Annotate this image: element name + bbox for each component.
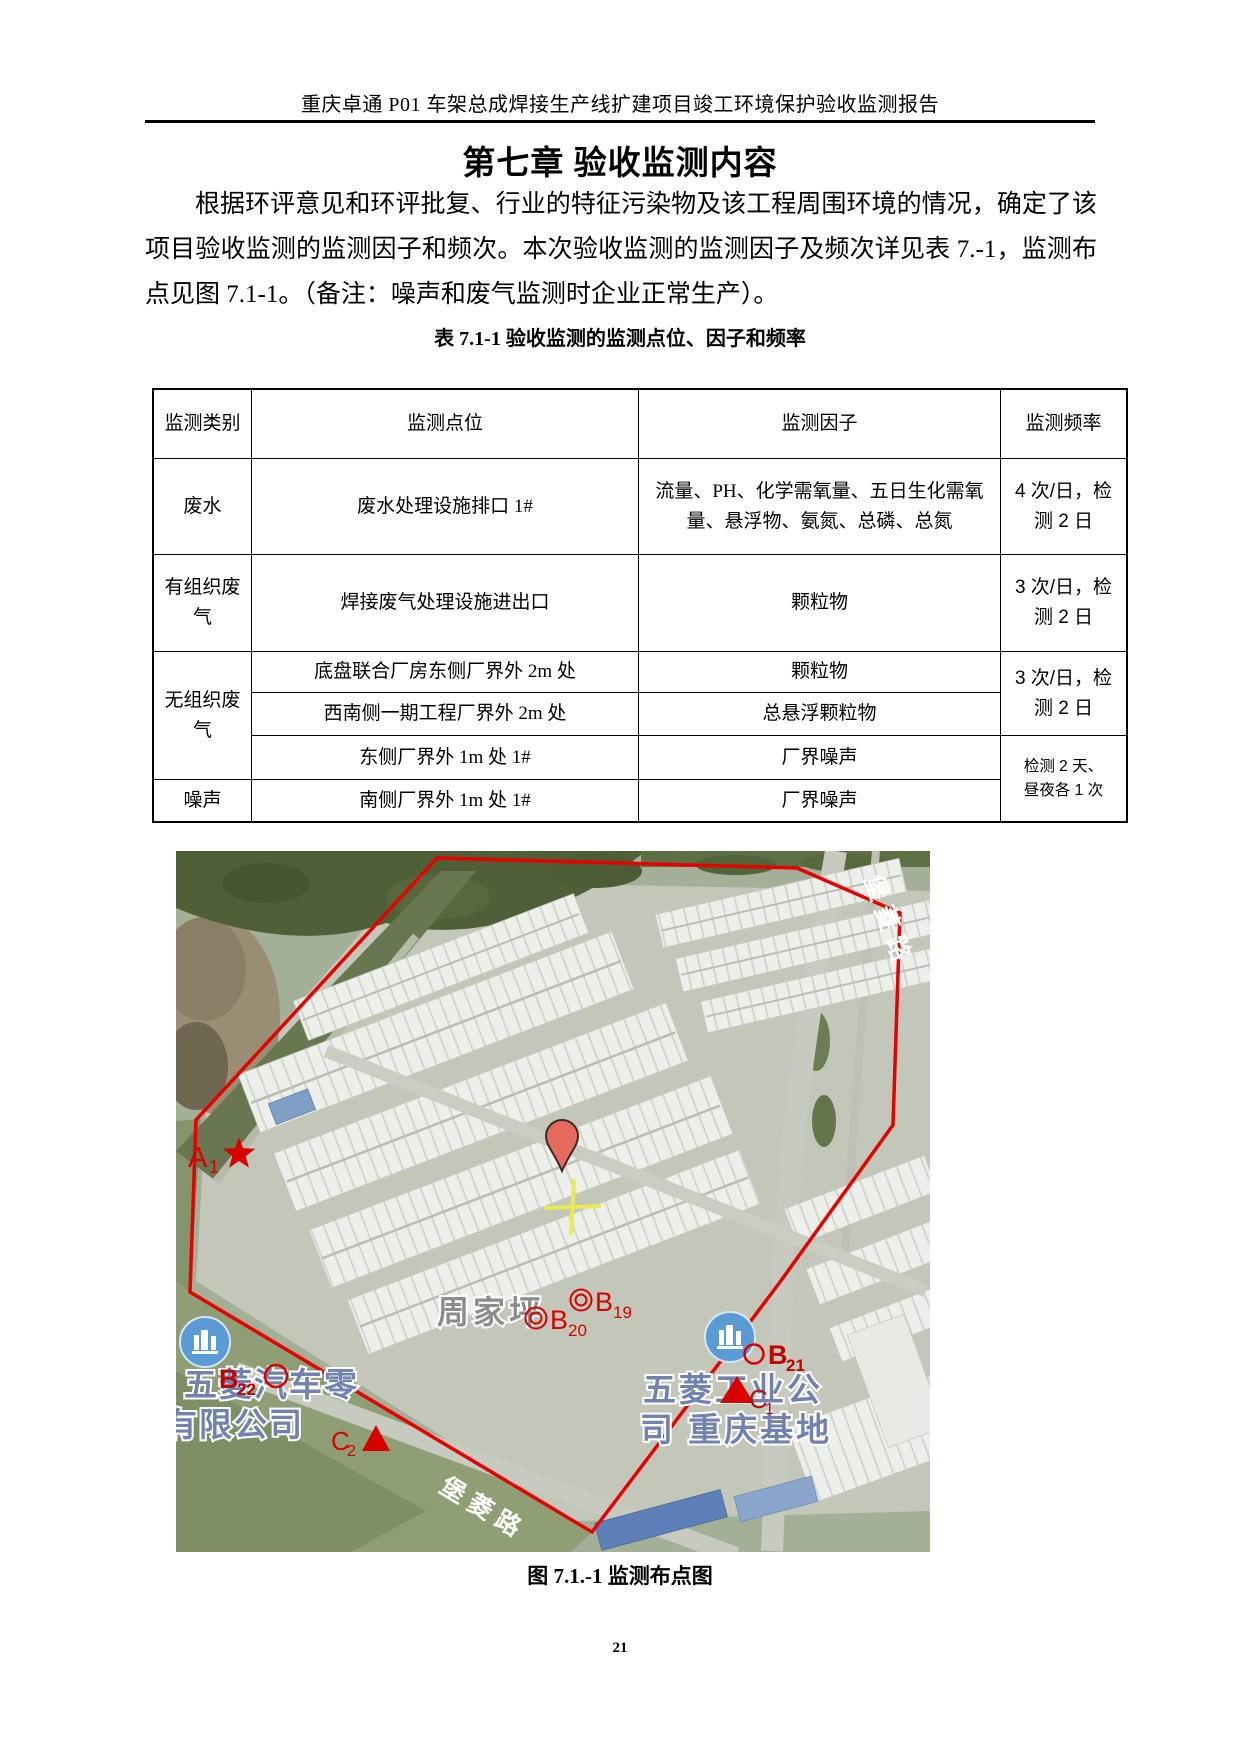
- cell-location-noise-east: 东侧厂界外 1m 处 1#: [252, 736, 639, 780]
- chapter-title: 第七章 验收监测内容: [0, 136, 1240, 184]
- report-page: { "document": { "header_title": "重庆卓通 P0…: [0, 0, 1240, 1754]
- marker-c1-sub: 1: [765, 1401, 774, 1418]
- cell-factor-noise-south: 厂界噪声: [639, 780, 1001, 823]
- figure-caption: 图 7.1.-1 监测布点图: [0, 1560, 1240, 1590]
- cell-factor-fugitive-2: 总悬浮颗粒物: [639, 693, 1001, 736]
- marker-b20-sub: 20: [568, 1321, 587, 1340]
- header-location: 监测点位: [252, 389, 639, 459]
- cell-category-wastewater: 废水: [153, 459, 252, 555]
- cell-category-noise: 噪声: [153, 780, 252, 823]
- noise-frequency-line2: 昼夜各 1 次: [1007, 779, 1120, 803]
- cell-location-organized-gas: 焊接废气处理设施进出口: [252, 555, 639, 652]
- company-left-line1: 五菱汽车零: [184, 1366, 359, 1403]
- cell-factor-fugitive-1: 颗粒物: [639, 652, 1001, 693]
- cell-location-noise-south: 南侧厂界外 1m 处 1#: [252, 780, 639, 823]
- table-row-noise-south: 噪声 南侧厂界外 1m 处 1# 厂界噪声: [153, 780, 1127, 823]
- table-row-fugitive-2: 西南侧一期工程厂界外 2m 处 总悬浮颗粒物: [153, 693, 1127, 736]
- header-rule: [145, 120, 1095, 123]
- cell-factor-wastewater: 流量、PH、化学需氧量、五日生化需氧量、悬浮物、氨氮、总磷、总氮: [639, 459, 1001, 555]
- monitoring-map: 周家坪 五菱工业公 司 重庆基地 五菱汽车零 有限公司 堡菱路 堡菱路 A 1 …: [176, 851, 930, 1552]
- marker-b21-label: B: [768, 1340, 788, 1370]
- cell-location-wastewater: 废水处理设施排口 1#: [252, 459, 639, 555]
- table-header-row: 监测类别 监测点位 监测因子 监测频率: [153, 389, 1127, 459]
- marker-a1-sub: 1: [209, 1157, 219, 1177]
- cell-frequency-wastewater: 4 次/日，检测 2 日: [1001, 459, 1128, 555]
- monitoring-table: 监测类别 监测点位 监测因子 监测频率 废水 废水处理设施排口 1# 流量、PH…: [152, 388, 1128, 823]
- poi-icon-left: [180, 1317, 230, 1367]
- company-right-line2: 司 重庆基地: [640, 1411, 832, 1448]
- page-number: 21: [0, 1640, 1240, 1657]
- marker-b22-sub: 22: [237, 1380, 256, 1399]
- marker-a1-label: A: [188, 1142, 208, 1174]
- marker-b20-label: B: [550, 1305, 568, 1335]
- cell-category-fugitive-gas: 无组织废气: [153, 652, 252, 780]
- table-caption: 表 7.1-1 验收监测的监测点位、因子和频率: [0, 322, 1240, 351]
- poi-icon-right: [705, 1312, 755, 1362]
- cell-location-fugitive-2: 西南侧一期工程厂界外 2m 处: [252, 693, 639, 736]
- marker-c2-sub: 2: [347, 1443, 356, 1460]
- company-left-line2: 有限公司: [176, 1406, 304, 1443]
- document-header-title: 重庆卓通 P01 车架总成焊接生产线扩建项目竣工环境保护验收监测报告: [145, 88, 1095, 117]
- noise-frequency-line1: 检测 2 天、: [1007, 755, 1120, 779]
- satellite-map: 周家坪 五菱工业公 司 重庆基地 五菱汽车零 有限公司 堡菱路 堡菱路 A 1 …: [176, 851, 930, 1552]
- marker-b22-label: B: [219, 1364, 239, 1394]
- marker-b19-label: B: [595, 1287, 613, 1317]
- body-paragraph: 根据环评意见和环评批复、行业的特征污染物及该工程周围环境的情况，确定了该项目验收…: [145, 182, 1097, 317]
- cell-frequency-noise: 检测 2 天、 昼夜各 1 次: [1001, 736, 1128, 823]
- cell-factor-noise-east: 厂界噪声: [639, 736, 1001, 780]
- header-category: 监测类别: [153, 389, 252, 459]
- cell-frequency-fugitive-gas: 3 次/日，检测 2 日: [1001, 652, 1128, 736]
- cell-factor-organized-gas: 颗粒物: [639, 555, 1001, 652]
- header-factor: 监测因子: [639, 389, 1001, 459]
- marker-b19-sub: 19: [613, 1303, 632, 1322]
- table-row-wastewater: 废水 废水处理设施排口 1# 流量、PH、化学需氧量、五日生化需氧量、悬浮物、氨…: [153, 459, 1127, 555]
- cell-category-organized-gas: 有组织废气: [153, 555, 252, 652]
- table-row-noise-east: 东侧厂界外 1m 处 1# 厂界噪声 检测 2 天、 昼夜各 1 次: [153, 736, 1127, 780]
- table-row-organized-gas: 有组织废气 焊接废气处理设施进出口 颗粒物 3 次/日，检测 2 日: [153, 555, 1127, 652]
- header-frequency: 监测频率: [1001, 389, 1128, 459]
- cell-frequency-organized-gas: 3 次/日，检测 2 日: [1001, 555, 1128, 652]
- marker-b21-sub: 21: [786, 1356, 805, 1375]
- table-row-fugitive-1: 无组织废气 底盘联合厂房东侧厂界外 2m 处 颗粒物 3 次/日，检测 2 日: [153, 652, 1127, 693]
- cell-location-fugitive-1: 底盘联合厂房东侧厂界外 2m 处: [252, 652, 639, 693]
